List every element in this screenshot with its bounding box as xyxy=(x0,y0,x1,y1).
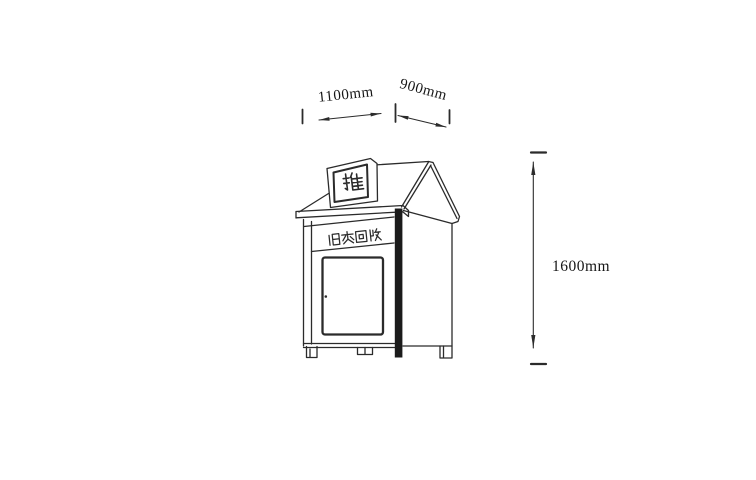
chute-label-text: 推 xyxy=(342,172,364,194)
depth-dimension-arrow xyxy=(398,116,446,128)
middle-feet xyxy=(358,348,373,355)
drawing-canvas: 1100mm 900mm 1600mm 推 旧衣回收 xyxy=(0,0,756,480)
front-door xyxy=(323,258,384,335)
left-corner-post xyxy=(304,220,312,347)
right-foot xyxy=(440,346,452,358)
right-wall xyxy=(395,209,452,358)
right-corner-post xyxy=(395,209,403,358)
width-dimension-arrow xyxy=(319,113,381,121)
front-wall-top-line xyxy=(304,217,394,227)
right-wall-edges xyxy=(403,211,452,347)
roof-eave-band xyxy=(296,206,409,219)
front-label-text: 旧衣回收 xyxy=(327,231,382,246)
height-dimension-arrow xyxy=(531,162,535,348)
height-dimension-label: 1600mm xyxy=(552,258,610,276)
door-lock-dot xyxy=(325,295,328,298)
roof-gable-left-edge xyxy=(402,162,432,209)
roof-gable-right-edge xyxy=(431,163,460,224)
roof-apex-cap xyxy=(429,162,434,163)
